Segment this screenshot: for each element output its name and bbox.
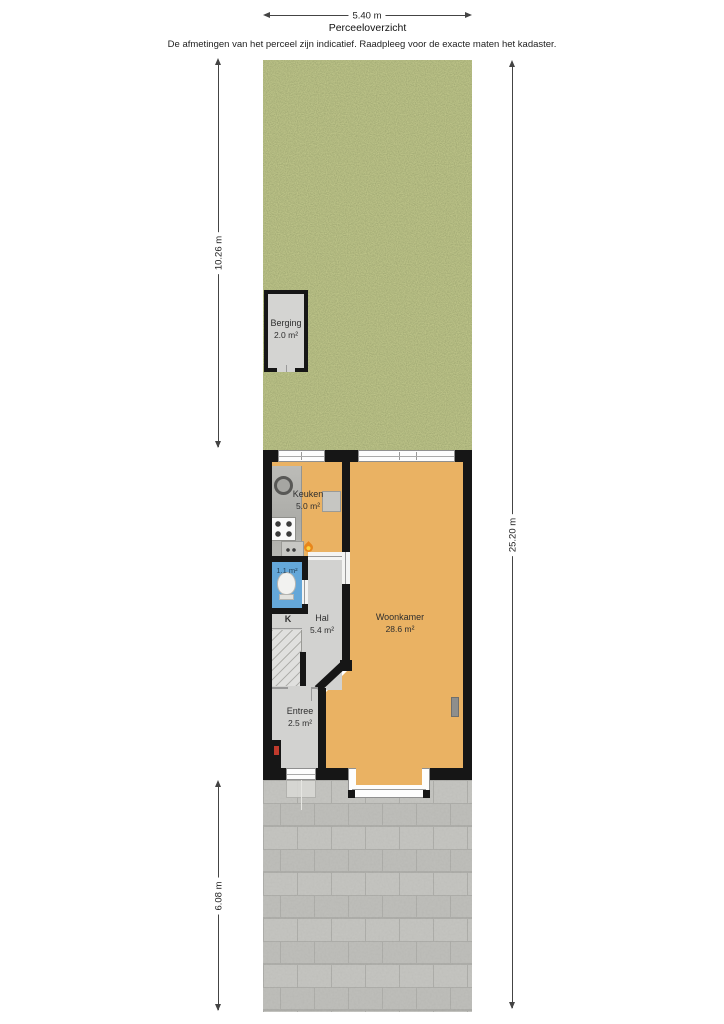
bay-window-sill-line: [352, 789, 426, 790]
closet-divider-line: [272, 628, 302, 629]
berging-area-label: 2.0 m²: [266, 330, 306, 341]
wall-right: [463, 450, 472, 780]
plot-depth-label: 25.20 m: [507, 514, 520, 556]
pavement-area: [263, 780, 472, 1012]
garden-depth-label: 10.26 m: [213, 232, 226, 274]
keuken-woonkamer-door: [342, 552, 350, 584]
entree-area-label: 2.5 m²: [277, 718, 323, 729]
wall-top-a: [263, 450, 278, 462]
woonkamer-area-label: 28.6 m²: [340, 624, 460, 635]
wall-bottom-c: [428, 768, 472, 780]
keuken-label: Keuken 5.0 m²: [280, 489, 336, 512]
front-door-swing-line: [301, 780, 302, 810]
garden-area: [263, 60, 472, 450]
wall-top-c: [455, 450, 472, 462]
arrow-down-icon: [509, 1002, 515, 1009]
floorplan-canvas: 5.40 m Perceeloverzicht De afmetingen va…: [0, 0, 724, 1024]
woonkamer-name: Woonkamer: [340, 612, 460, 624]
wall-top-b: [325, 450, 358, 462]
toilet-base: [279, 594, 294, 600]
bay-window-floor: [356, 768, 422, 785]
woonkamer-label: Woonkamer 28.6 m²: [340, 612, 460, 635]
bay-window-post-left: [348, 790, 355, 798]
window-tick: [416, 452, 417, 460]
grass-texture: [263, 60, 472, 450]
toilet-door-line: [304, 580, 305, 604]
door-leaf-line: [345, 552, 346, 584]
hal-entree-door-line: [311, 687, 312, 701]
living-room-window: [358, 450, 455, 462]
radiator: [451, 697, 459, 717]
wall-left: [263, 450, 272, 780]
arrow-down-icon: [215, 1004, 221, 1011]
keuken-name: Keuken: [280, 489, 336, 501]
berging-door-line: [286, 365, 287, 372]
window-tick: [399, 452, 400, 460]
arrow-up-icon: [215, 780, 221, 787]
toilet-door: [302, 580, 308, 604]
front-depth-label: 6.08 m: [213, 877, 226, 914]
wall-keuken-woonkamer-upper: [342, 462, 350, 552]
berging-label: Berging 2.0 m²: [266, 318, 306, 341]
arrow-down-icon: [215, 441, 221, 448]
disclaimer-text: De afmetingen van het perceel zijn indic…: [0, 39, 724, 50]
arrow-up-icon: [509, 60, 515, 67]
bay-window-post-right: [423, 790, 430, 798]
keuken-area-label: 5.0 m²: [280, 501, 336, 512]
front-door: [286, 768, 316, 780]
page-title: Perceeloverzicht: [263, 22, 472, 34]
berging-name: Berging: [266, 318, 306, 330]
toilet-area-label: 1.1 m²: [270, 566, 304, 576]
wall-bottom-a: [263, 768, 286, 780]
top-dimension-label: 5.40 m: [348, 10, 385, 23]
arrow-right-icon: [465, 12, 472, 18]
keuken-hal-line: [308, 556, 342, 557]
closet-label: K: [276, 614, 300, 626]
hal-name: Hal: [300, 613, 344, 625]
stove-icon: [270, 517, 296, 541]
hal-entree-wall-b: [312, 687, 318, 689]
kitchen-window: [278, 450, 325, 462]
meter-cabinet-red-unit: [274, 746, 279, 755]
stairs-wall-stub: [300, 652, 306, 686]
entree-name: Entree: [277, 706, 323, 718]
wall-bottom-b: [316, 768, 350, 780]
entree-label: Entree 2.5 m²: [277, 706, 323, 729]
arrow-left-icon: [263, 12, 270, 18]
oven-icon: [281, 541, 304, 557]
pavement-texture: [263, 780, 472, 1012]
hal-entree-wall-a: [272, 687, 288, 689]
hal-label: Hal 5.4 m²: [300, 613, 344, 636]
arrow-up-icon: [215, 58, 221, 65]
staircase: [272, 630, 302, 686]
window-tick: [301, 452, 302, 460]
hal-area-label: 5.4 m²: [300, 625, 344, 636]
